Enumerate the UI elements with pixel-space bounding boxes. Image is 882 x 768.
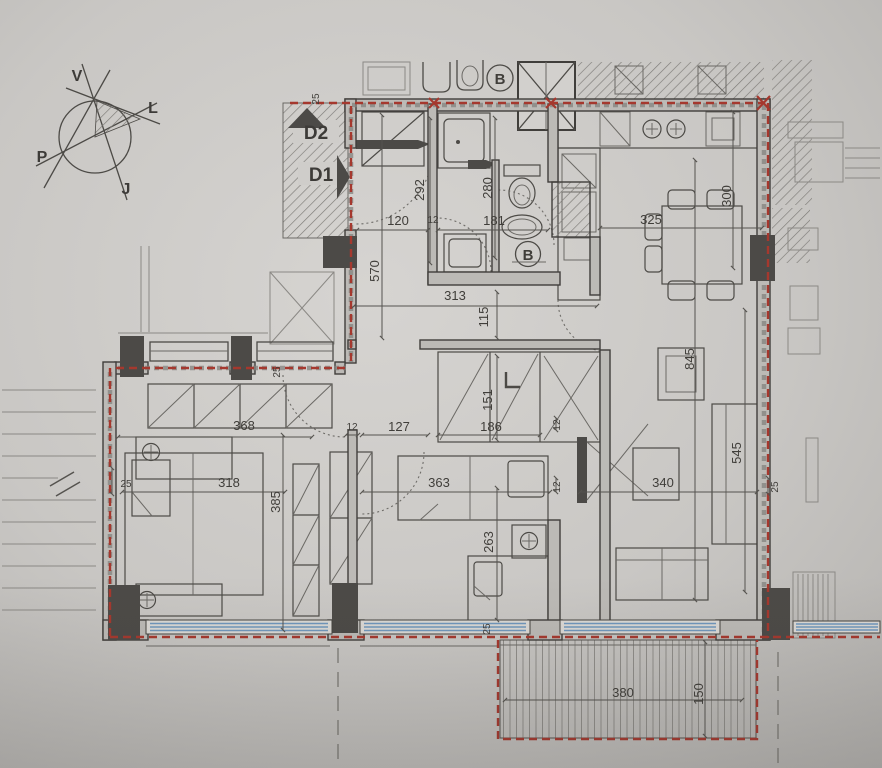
dim-win-25: 25 bbox=[272, 366, 283, 378]
dim-terrace-25: 25 bbox=[482, 623, 493, 635]
dim-corridor-313: 313 bbox=[444, 288, 466, 303]
compass-south: J bbox=[122, 181, 131, 198]
dim-corridor-127: 127 bbox=[388, 419, 410, 434]
socket-symbol-1 bbox=[143, 444, 160, 461]
dim-hall-12: 12 bbox=[427, 215, 439, 226]
dim-pass-115: 115 bbox=[476, 307, 491, 328]
shaft-icon bbox=[518, 62, 575, 130]
dim-corridor-570: 570 bbox=[367, 260, 382, 282]
dim-living-340: 340 bbox=[652, 475, 674, 490]
socket-symbol-3 bbox=[521, 533, 538, 550]
dim-closet-186: 186 bbox=[480, 419, 502, 434]
floor-plan-photo: B B 25 292 120 12 181 280 570 313 115 32… bbox=[0, 0, 882, 768]
dim-living-545: 545 bbox=[729, 442, 744, 464]
dim-top-25: 25 bbox=[311, 93, 322, 105]
dim-ward-368: 368 bbox=[233, 418, 255, 433]
badge-b-top-label: B bbox=[495, 71, 506, 88]
dim-bed1-318: 318 bbox=[218, 475, 240, 490]
entry-door-leaf bbox=[356, 140, 430, 149]
dim-bed1-385: 385 bbox=[268, 491, 283, 513]
dim-living-845: 845 bbox=[682, 348, 697, 370]
door-label-d2: D2 bbox=[304, 123, 328, 144]
dim-12a: 12 bbox=[346, 422, 358, 433]
door-label-d1: D1 bbox=[309, 165, 334, 186]
socket-symbol-2 bbox=[139, 592, 156, 609]
dim-closet-151: 151 bbox=[480, 389, 495, 411]
dim-kitchen-325: 325 bbox=[640, 212, 662, 227]
dim-hall-292: 292 bbox=[412, 179, 427, 201]
neighbor-counter-hatch bbox=[578, 62, 764, 100]
dim-bed2-263: 263 bbox=[481, 531, 496, 553]
dim-left-25: 25 bbox=[120, 479, 132, 490]
dim-wc-181: 181 bbox=[483, 213, 505, 228]
dim-terrace-380: 380 bbox=[612, 685, 634, 700]
compass-east: L bbox=[148, 100, 158, 117]
dim-12b: 12 bbox=[552, 419, 563, 431]
dim-terrace-150: 150 bbox=[691, 683, 706, 705]
compass-west: P bbox=[37, 149, 48, 166]
badge-b-hall-label: B bbox=[523, 247, 534, 264]
dim-wc-280: 280 bbox=[480, 177, 495, 199]
compass-north: V bbox=[72, 68, 83, 85]
dim-right-25: 25 bbox=[770, 481, 781, 493]
hatched-pier bbox=[552, 182, 590, 237]
dim-bed2-363: 363 bbox=[428, 475, 450, 490]
floor-plan-canvas: B B 25 292 120 12 181 280 570 313 115 32… bbox=[0, 0, 882, 768]
dim-kitchen-300: 300 bbox=[719, 185, 734, 207]
dim-hall-120: 120 bbox=[387, 213, 409, 228]
dim-12c: 12 bbox=[552, 481, 563, 493]
